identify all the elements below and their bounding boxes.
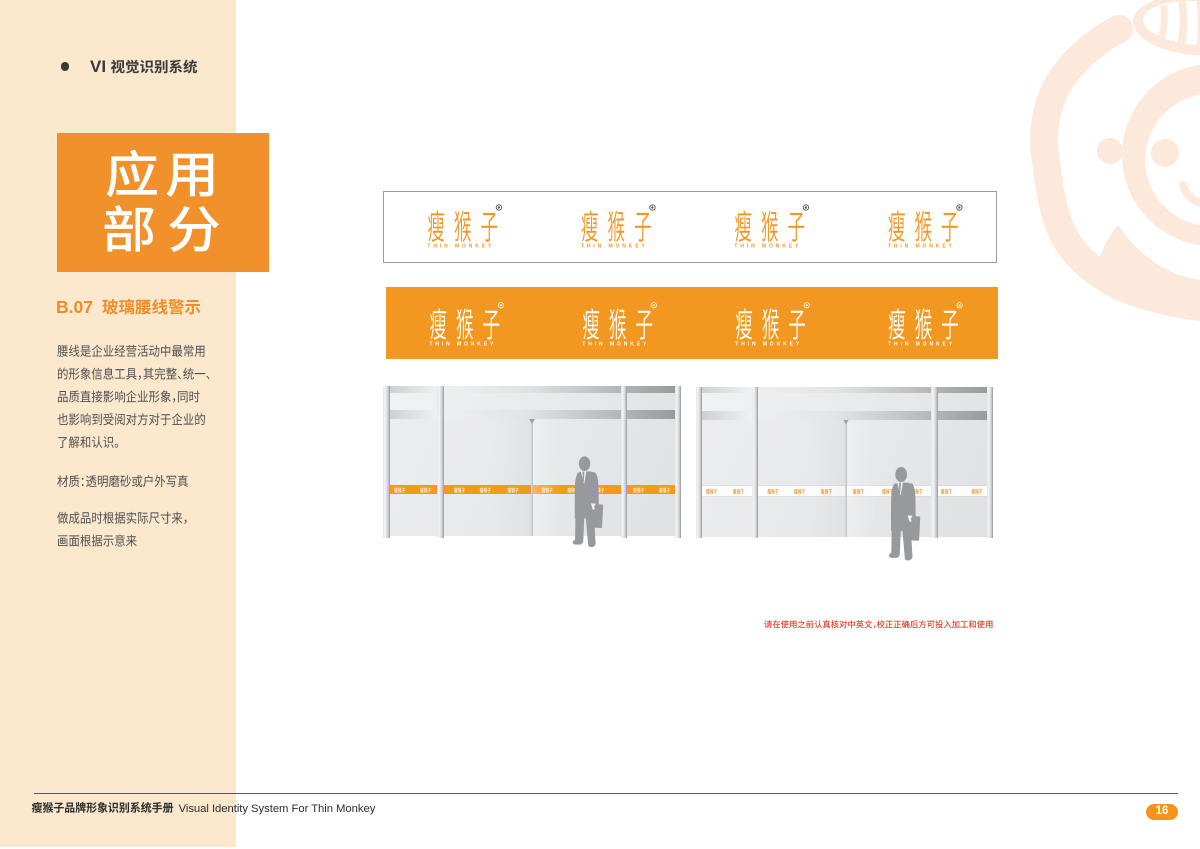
- svg-text:Visual Identity System For Thi: Visual Identity System For Thin Monkey: [179, 803, 376, 815]
